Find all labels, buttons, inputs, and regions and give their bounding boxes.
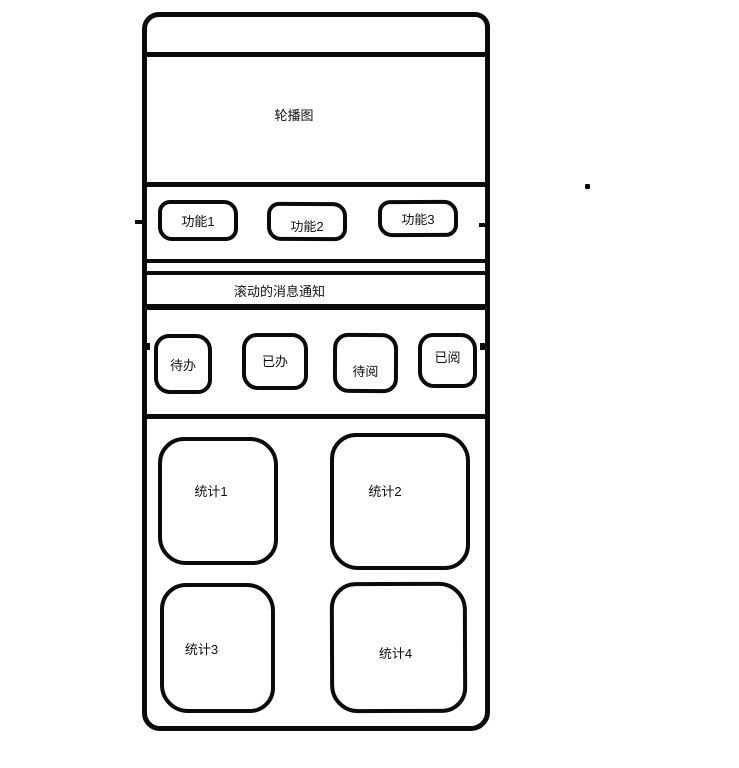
status-button-toread[interactable]: 待阅: [333, 333, 398, 393]
function-button-1-label: 功能1: [181, 211, 214, 230]
anchor-tick-right-statusrow: [480, 343, 486, 350]
anchor-tick-left-statusrow: [144, 343, 150, 350]
status-bar: [147, 17, 485, 57]
function-button-2[interactable]: 功能2: [267, 202, 347, 241]
status-button-toread-label: 待阅: [352, 361, 378, 380]
function-button-3-label: 功能3: [401, 209, 434, 228]
wireframe-canvas: 轮播图 功能1 功能2 功能3 滚动的消息通知 待办 已办 待阅 已阅 统计1: [0, 0, 739, 768]
stat-card-3-label: 统计3: [185, 639, 218, 658]
function-button-1[interactable]: 功能1: [158, 200, 238, 241]
anchor-tick-left-functions: [135, 220, 143, 224]
status-button-done-label: 已办: [262, 351, 288, 370]
stat-card-4-label: 统计4: [379, 643, 412, 662]
stat-card-1-label: 统计1: [194, 481, 227, 500]
status-button-todo[interactable]: 待办: [154, 334, 212, 394]
anchor-tick-right-functions: [479, 223, 487, 227]
status-button-read-label: 已阅: [434, 347, 460, 366]
status-button-read[interactable]: 已阅: [418, 333, 477, 388]
function-button-2-label: 功能2: [290, 216, 323, 235]
function-button-3[interactable]: 功能3: [378, 200, 458, 237]
stat-card-2[interactable]: 统计2: [330, 433, 470, 570]
notice-ticker-label: 滚动的消息通知: [234, 284, 325, 299]
phone-frame[interactable]: 轮播图 功能1 功能2 功能3 滚动的消息通知 待办 已办 待阅 已阅 统计1: [142, 12, 490, 731]
status-button-todo-label: 待办: [170, 355, 196, 374]
stat-card-1[interactable]: 统计1: [158, 437, 278, 565]
stat-card-3[interactable]: 统计3: [160, 583, 275, 713]
stat-card-4[interactable]: 统计4: [330, 582, 467, 713]
stray-ink-dot: [585, 184, 590, 189]
status-button-done[interactable]: 已办: [242, 333, 308, 390]
stat-card-2-label: 统计2: [368, 481, 401, 500]
carousel-label: 轮播图: [259, 108, 329, 123]
